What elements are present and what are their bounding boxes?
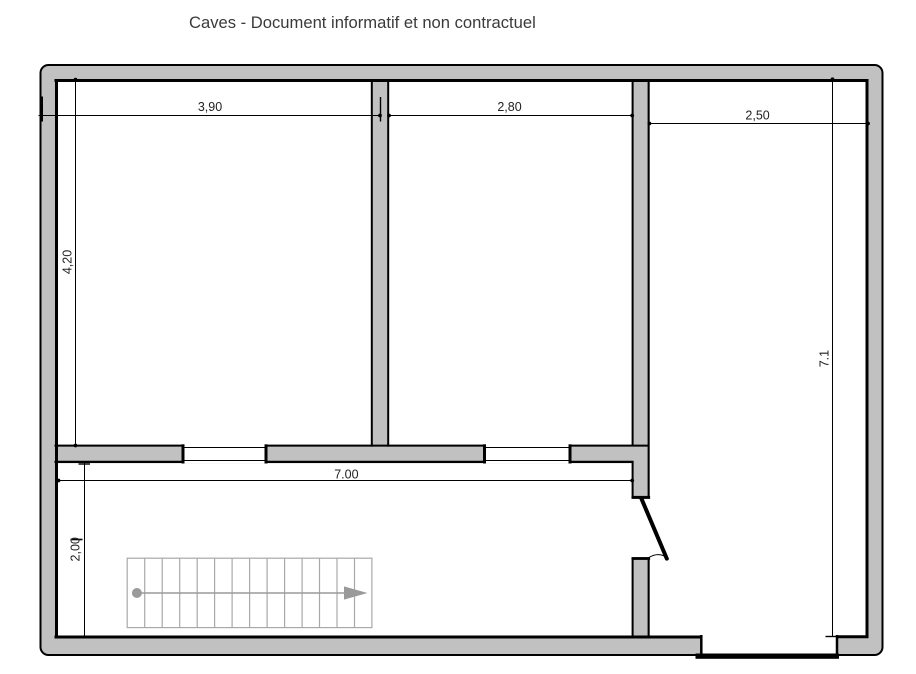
svg-text:Caves - Document informatif et: Caves - Document informatif et non contr… <box>189 13 536 32</box>
svg-text:2,80: 2,80 <box>497 100 521 114</box>
svg-text:3,90: 3,90 <box>198 100 222 114</box>
svg-text:2,00: 2,00 <box>69 537 83 561</box>
svg-text:4,20: 4,20 <box>61 250 75 274</box>
svg-text:7.1: 7.1 <box>818 350 832 367</box>
svg-text:2,50: 2,50 <box>745 109 769 123</box>
svg-text:7.00: 7.00 <box>334 468 358 482</box>
